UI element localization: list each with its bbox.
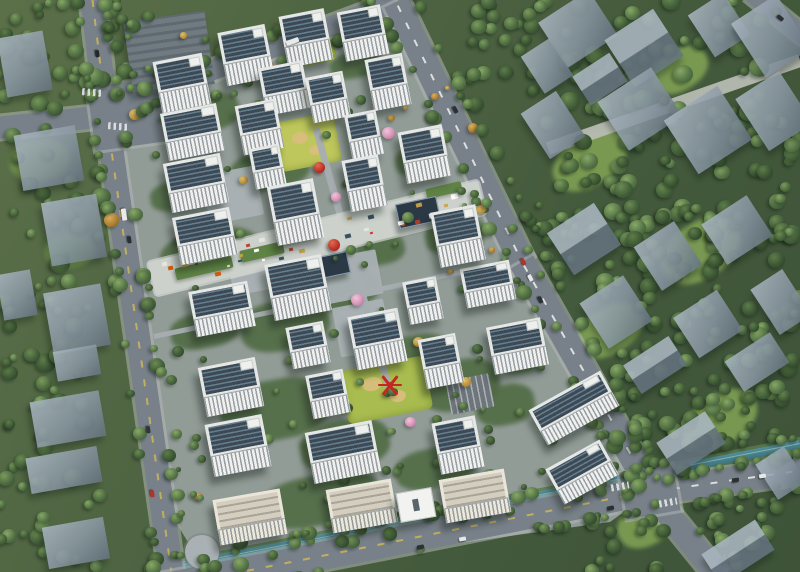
tree bbox=[361, 261, 369, 268]
tree bbox=[536, 202, 543, 208]
tree bbox=[457, 187, 467, 196]
residential-tower bbox=[337, 4, 390, 61]
tree bbox=[486, 436, 495, 445]
tree bbox=[609, 378, 624, 392]
tree bbox=[713, 514, 725, 525]
tree bbox=[116, 90, 123, 97]
rooftop-unit bbox=[300, 182, 312, 194]
rooftop-unit bbox=[366, 112, 375, 121]
tree bbox=[622, 510, 632, 519]
tree bbox=[470, 190, 479, 198]
tree bbox=[742, 301, 758, 316]
rooftop-unit bbox=[332, 371, 342, 381]
tree bbox=[90, 561, 103, 572]
rooftop-unit bbox=[270, 146, 279, 155]
tree bbox=[403, 106, 408, 111]
awning-chip bbox=[289, 247, 293, 251]
tree bbox=[47, 101, 63, 116]
rooftop-unit bbox=[264, 101, 275, 111]
tree bbox=[456, 92, 464, 100]
tree bbox=[53, 66, 68, 80]
tree bbox=[614, 181, 633, 198]
tree bbox=[680, 36, 690, 45]
rooftop-unit bbox=[368, 157, 378, 168]
tree bbox=[47, 276, 57, 285]
entrance-gate bbox=[396, 487, 437, 523]
tree bbox=[616, 156, 629, 168]
tree bbox=[630, 393, 639, 401]
tree bbox=[24, 348, 40, 363]
tree bbox=[662, 0, 681, 10]
tree bbox=[2, 358, 12, 367]
tree bbox=[643, 292, 656, 304]
car bbox=[146, 426, 150, 433]
ghost-building bbox=[14, 125, 85, 191]
tree bbox=[121, 340, 130, 349]
tree bbox=[768, 252, 786, 268]
tree bbox=[402, 212, 414, 223]
tree bbox=[33, 2, 44, 12]
tree bbox=[757, 498, 766, 506]
tree bbox=[499, 34, 512, 46]
ghost-building bbox=[25, 446, 102, 494]
ghost-building bbox=[53, 344, 102, 381]
tree bbox=[714, 165, 730, 179]
car bbox=[150, 490, 154, 497]
red-spider-sculpture bbox=[387, 382, 393, 388]
tree bbox=[79, 62, 94, 75]
tree bbox=[145, 65, 152, 72]
tree bbox=[616, 212, 628, 223]
tree bbox=[4, 320, 17, 332]
tree bbox=[10, 208, 20, 217]
tree bbox=[94, 118, 101, 125]
tree bbox=[585, 564, 600, 572]
tree bbox=[102, 204, 114, 215]
tree bbox=[770, 501, 785, 514]
crosswalk bbox=[108, 122, 129, 131]
residential-tower bbox=[305, 369, 351, 419]
tree bbox=[35, 283, 43, 291]
tree bbox=[528, 85, 540, 96]
car bbox=[95, 50, 99, 57]
tree bbox=[409, 66, 417, 74]
tree bbox=[177, 552, 185, 559]
tree bbox=[180, 32, 188, 39]
tree bbox=[673, 65, 693, 83]
crosswalk bbox=[82, 88, 103, 97]
tree bbox=[690, 387, 699, 395]
red-sphere-sculpture bbox=[314, 162, 325, 173]
tree bbox=[664, 174, 679, 187]
tree bbox=[45, 0, 54, 7]
awning-chip bbox=[450, 193, 457, 199]
tree bbox=[137, 81, 153, 96]
tree bbox=[110, 40, 124, 53]
tree bbox=[534, 1, 547, 13]
ghost-building bbox=[673, 290, 743, 359]
tree bbox=[738, 491, 747, 500]
tree bbox=[329, 329, 339, 338]
tree bbox=[382, 466, 392, 475]
tree bbox=[780, 182, 791, 192]
tree bbox=[775, 231, 787, 242]
tree bbox=[0, 471, 15, 487]
tree bbox=[476, 124, 489, 136]
tree bbox=[10, 354, 18, 361]
rooftop-unit bbox=[312, 323, 322, 332]
tree bbox=[171, 489, 185, 501]
awning-chip bbox=[416, 202, 423, 208]
tree bbox=[146, 560, 162, 572]
tree bbox=[268, 550, 279, 560]
tree bbox=[660, 387, 669, 395]
tree bbox=[623, 251, 638, 265]
tree bbox=[575, 317, 589, 330]
tree bbox=[583, 512, 598, 525]
residential-tower bbox=[264, 254, 332, 321]
ghost-building bbox=[0, 30, 53, 97]
tree bbox=[556, 281, 567, 291]
tree bbox=[596, 431, 605, 440]
tree bbox=[119, 131, 133, 144]
tree bbox=[524, 18, 541, 33]
blossom-tree bbox=[382, 127, 395, 139]
tree bbox=[445, 86, 450, 91]
ghost-building bbox=[43, 283, 111, 354]
tree bbox=[127, 20, 135, 28]
tree bbox=[663, 474, 675, 485]
tree bbox=[507, 177, 515, 184]
tree bbox=[233, 557, 249, 571]
tree bbox=[525, 487, 539, 500]
tree bbox=[757, 165, 772, 179]
tree bbox=[562, 158, 579, 173]
tree bbox=[655, 210, 670, 224]
tree bbox=[629, 423, 642, 435]
tree bbox=[346, 245, 357, 255]
tree bbox=[775, 194, 786, 204]
tree bbox=[190, 491, 197, 497]
rooftop-unit bbox=[252, 27, 264, 38]
tree bbox=[624, 200, 640, 214]
tree bbox=[642, 440, 652, 450]
tree bbox=[487, 10, 501, 23]
tree bbox=[502, 248, 511, 256]
rooftop-unit bbox=[391, 56, 401, 67]
tree bbox=[482, 222, 497, 236]
tree bbox=[619, 406, 627, 414]
tree bbox=[68, 44, 84, 58]
tree bbox=[208, 560, 222, 572]
tree bbox=[713, 494, 722, 503]
tree bbox=[552, 267, 565, 279]
tree bbox=[141, 298, 155, 311]
tree bbox=[660, 156, 670, 166]
tree bbox=[776, 435, 787, 445]
tree bbox=[322, 131, 331, 139]
tree bbox=[708, 374, 721, 386]
tree bbox=[152, 151, 161, 159]
tree bbox=[605, 526, 617, 537]
tree bbox=[388, 115, 395, 121]
tree bbox=[289, 420, 298, 428]
tree bbox=[696, 527, 705, 535]
tree bbox=[706, 393, 720, 405]
tree bbox=[333, 256, 338, 261]
tree bbox=[127, 84, 135, 91]
tree bbox=[737, 462, 746, 471]
tree bbox=[539, 524, 549, 533]
car bbox=[127, 236, 131, 243]
tree bbox=[749, 322, 759, 332]
tree bbox=[166, 375, 177, 385]
tree bbox=[674, 383, 685, 393]
tree bbox=[743, 392, 756, 404]
tree bbox=[189, 441, 199, 450]
tree bbox=[202, 36, 210, 43]
tree bbox=[112, 2, 122, 11]
residential-tower bbox=[285, 321, 330, 369]
tree bbox=[656, 524, 671, 538]
residential-tower bbox=[347, 308, 407, 371]
tree bbox=[617, 348, 627, 357]
tree bbox=[128, 208, 143, 222]
ghost-building bbox=[0, 269, 38, 320]
tree bbox=[366, 241, 373, 248]
tree bbox=[467, 68, 480, 80]
ghost-building bbox=[41, 194, 107, 267]
awning-chip bbox=[238, 253, 243, 257]
tree bbox=[692, 396, 707, 409]
tree bbox=[61, 90, 70, 98]
tree bbox=[143, 11, 155, 22]
tree bbox=[479, 39, 490, 49]
tree bbox=[150, 345, 158, 353]
tree bbox=[69, 73, 79, 82]
tree bbox=[356, 95, 366, 105]
awning-chip bbox=[245, 243, 249, 246]
tree bbox=[172, 346, 184, 357]
tree bbox=[452, 76, 467, 90]
tree bbox=[20, 530, 29, 538]
tree bbox=[511, 491, 526, 505]
residential-tower bbox=[204, 414, 271, 477]
tree bbox=[103, 11, 113, 20]
tree bbox=[631, 463, 643, 474]
tree bbox=[5, 419, 15, 428]
tree bbox=[606, 563, 616, 572]
tree bbox=[198, 455, 206, 463]
tree bbox=[397, 463, 404, 469]
tree bbox=[581, 153, 598, 169]
rooftop-unit bbox=[332, 73, 342, 83]
tree bbox=[719, 383, 732, 395]
tree bbox=[607, 539, 623, 553]
tree bbox=[145, 284, 153, 291]
tree bbox=[314, 567, 324, 572]
tree bbox=[110, 249, 121, 259]
tree bbox=[746, 421, 756, 430]
tree bbox=[580, 177, 592, 188]
tree bbox=[684, 212, 694, 221]
tree bbox=[335, 535, 350, 549]
blossom-tree bbox=[351, 294, 364, 306]
tree bbox=[239, 176, 248, 185]
tree bbox=[516, 285, 532, 300]
residential-tower bbox=[152, 53, 211, 114]
tree bbox=[76, 17, 85, 26]
residential-tower bbox=[397, 124, 451, 184]
aerial-render-scene bbox=[0, 0, 800, 572]
tree bbox=[134, 449, 145, 459]
tree bbox=[524, 246, 533, 255]
tree bbox=[145, 311, 154, 320]
tree bbox=[10, 13, 23, 25]
blossom-tree bbox=[405, 417, 416, 427]
tree bbox=[649, 563, 663, 572]
tree bbox=[499, 66, 514, 80]
tree bbox=[2, 366, 18, 381]
tree bbox=[736, 505, 744, 512]
tree bbox=[521, 35, 532, 45]
tree bbox=[596, 556, 605, 565]
rooftop-unit bbox=[463, 207, 475, 218]
tree bbox=[0, 500, 6, 509]
tree bbox=[113, 278, 128, 292]
tree bbox=[57, 0, 69, 10]
tree bbox=[659, 416, 676, 432]
tree bbox=[504, 17, 518, 30]
red-sphere-sculpture bbox=[328, 239, 340, 251]
tree bbox=[387, 428, 395, 436]
tree bbox=[605, 260, 615, 269]
tree bbox=[156, 367, 167, 377]
tree bbox=[84, 500, 94, 509]
tree bbox=[133, 427, 147, 440]
tree bbox=[489, 247, 496, 253]
tree bbox=[516, 194, 524, 201]
tree bbox=[31, 95, 49, 111]
tree bbox=[200, 356, 208, 363]
tree bbox=[739, 439, 748, 447]
tree bbox=[0, 534, 7, 544]
tree bbox=[648, 410, 657, 419]
tree bbox=[356, 378, 364, 386]
rooftop-unit bbox=[463, 418, 474, 429]
tree bbox=[93, 489, 107, 502]
tree bbox=[463, 99, 473, 109]
gate-opening bbox=[412, 499, 421, 511]
tree bbox=[537, 271, 545, 279]
tree bbox=[61, 274, 77, 288]
rooftop-unit bbox=[444, 336, 454, 346]
tree bbox=[383, 527, 398, 540]
tree bbox=[468, 37, 479, 47]
rooftop-unit bbox=[311, 11, 323, 22]
awning-chip bbox=[227, 264, 231, 267]
rooftop-unit bbox=[426, 279, 435, 288]
tree bbox=[632, 508, 641, 517]
tree bbox=[236, 229, 246, 238]
tree bbox=[27, 229, 36, 238]
tree bbox=[471, 20, 487, 35]
tree bbox=[700, 497, 711, 507]
tree bbox=[18, 482, 28, 491]
tree bbox=[415, 1, 427, 12]
tree bbox=[434, 44, 442, 52]
tree bbox=[302, 530, 309, 537]
tree bbox=[145, 527, 157, 538]
tree bbox=[636, 526, 646, 536]
tree bbox=[172, 429, 182, 439]
residential-tower bbox=[278, 8, 333, 68]
tree bbox=[609, 430, 625, 445]
rooftop-unit bbox=[430, 127, 442, 138]
tree bbox=[490, 146, 505, 160]
rooftop-unit bbox=[368, 7, 379, 18]
